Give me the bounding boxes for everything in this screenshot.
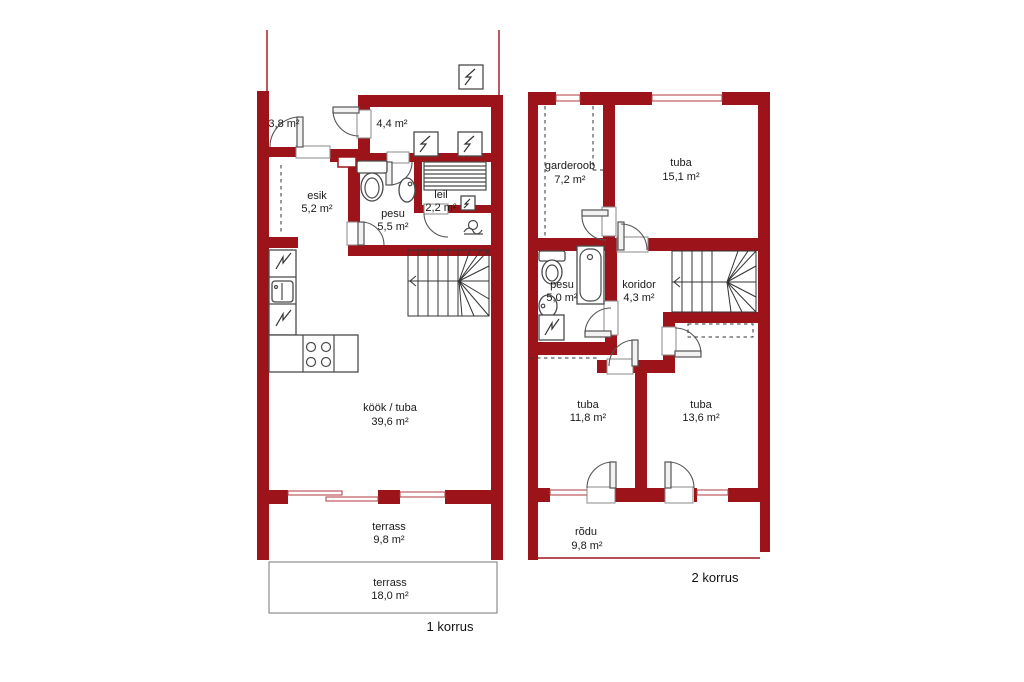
room-area: 2,2 m² — [425, 202, 457, 214]
electric-heater-icon — [414, 132, 438, 156]
room-area: 18,0 m² — [371, 590, 409, 602]
window — [652, 95, 722, 101]
electric-heater-icon — [459, 65, 483, 89]
room-name: tuba — [670, 157, 692, 169]
bathtub-icon — [577, 246, 604, 304]
kitchen-sink-icon — [272, 281, 293, 302]
room-name: leil — [434, 189, 447, 201]
floor-drain-icon — [464, 221, 483, 235]
window — [697, 490, 728, 495]
washing-machine-icon — [539, 315, 564, 340]
floor1-plan: 3,8 m² 4,4 m² esik 5,2 m² pesu 5,5 m² le… — [257, 30, 503, 634]
floor2-caption: 2 korrus — [692, 570, 739, 585]
stairs — [408, 250, 489, 316]
stairs — [672, 251, 756, 312]
window — [556, 95, 580, 101]
toilet-icon — [357, 161, 387, 201]
vent-shaft — [338, 157, 356, 167]
room-name: tuba — [577, 399, 599, 411]
room-area: 9,8 m² — [373, 534, 405, 546]
room-area: 4,4 m² — [376, 118, 408, 130]
room-name: köök / tuba — [363, 402, 418, 414]
kitchen-counter — [269, 250, 358, 372]
room-area: 5,0 m² — [546, 292, 578, 304]
room-name: pesu — [550, 279, 574, 291]
sliding-window — [326, 497, 378, 501]
room-area: 39,6 m² — [371, 416, 409, 428]
room-area: 9,8 m² — [571, 540, 603, 552]
room-name: garderoob — [545, 160, 595, 172]
sauna-heater-icon — [461, 196, 475, 210]
washbasin-icon — [399, 178, 415, 202]
room-area: 4,3 m² — [623, 292, 655, 304]
room-name: tuba — [690, 399, 712, 411]
window — [400, 492, 445, 497]
sauna-bench-icon — [424, 162, 486, 190]
room-name: pesu — [381, 208, 405, 220]
floor-plan-page: 3,8 m² 4,4 m² esik 5,2 m² pesu 5,5 m² le… — [0, 0, 1024, 682]
room-name: rõdu — [575, 526, 597, 538]
floor1-caption: 1 korrus — [427, 619, 474, 634]
room-area: 3,8 m² — [268, 118, 300, 130]
room-area: 5,5 m² — [377, 221, 409, 233]
room-area: 7,2 m² — [554, 174, 586, 186]
window — [550, 490, 587, 495]
floor2-plan: garderoob 7,2 m² tuba 15,1 m² pesu 5,0 m… — [528, 92, 770, 585]
room-name: koridor — [622, 279, 656, 291]
electric-heater-icon — [458, 132, 482, 156]
room-area: 11,8 m² — [570, 412, 607, 424]
room-area: 5,2 m² — [301, 203, 333, 215]
floor1-windows — [288, 491, 445, 501]
sliding-window — [288, 491, 342, 495]
room-name: terrass — [373, 577, 407, 589]
room-name: terrass — [372, 521, 406, 533]
floor-plan-drawing: 3,8 m² 4,4 m² esik 5,2 m² pesu 5,5 m² le… — [0, 0, 1024, 682]
room-name: esik — [307, 190, 327, 202]
room-area: 15,1 m² — [662, 171, 700, 183]
room-area: 13,6 m² — [682, 412, 720, 424]
stair-headroom-dashed — [688, 324, 753, 337]
